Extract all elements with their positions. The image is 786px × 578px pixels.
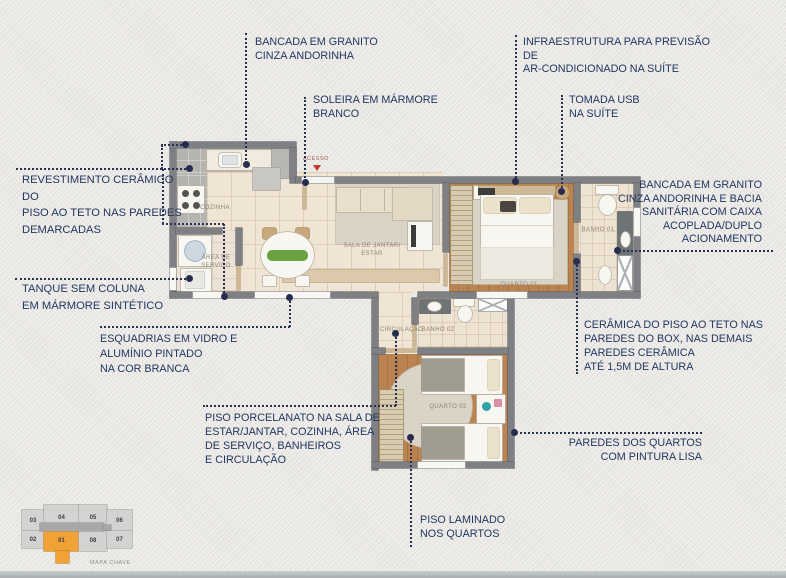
wall: [465, 462, 514, 468]
keymap-unit-number: 05: [90, 515, 97, 521]
connector-dot: [407, 434, 414, 441]
connector-line: [15, 278, 190, 280]
connector-dot: [243, 161, 250, 168]
bathroom2-sink: [428, 302, 441, 311]
connector-dot: [186, 165, 193, 172]
keymap-unit-number: 01: [58, 538, 65, 544]
connector-dot: [221, 293, 228, 300]
table-runner: [267, 250, 308, 261]
sofa-cushion-divider: [360, 189, 361, 211]
callout-bancada-granito-banho: BANCADA EM GRANITO CINZA ANDORINHA E BAC…: [600, 179, 762, 247]
connector-line: [515, 35, 517, 182]
callout-bancada-granito-cozinha: BANCADA EM GRANITO CINZA ANDORINHA: [255, 36, 400, 63]
connector-line: [245, 33, 247, 164]
connector-dot: [512, 178, 519, 185]
window-bedroom1: [477, 292, 527, 298]
connector-dot: [392, 330, 399, 337]
blanket-bed2: [422, 427, 464, 459]
pillow: [520, 198, 550, 213]
room-label-area-servico: ÁREA DE SERVIÇO: [196, 255, 236, 270]
wall: [574, 183, 580, 222]
window-bedroom2: [418, 462, 465, 468]
keymap-unit-01-highlighted: 01: [44, 531, 79, 551]
keymap-unit-number: 04: [58, 515, 65, 521]
callout-piso-porcelanato: PISO PORCELANATO NA SALA DE ESTAR/JANTAR…: [205, 411, 385, 467]
connector-dot: [286, 294, 293, 301]
wall: [418, 348, 508, 354]
callout-infra-ar-condicionado: INFRAESTRUTURA PARA PREVISÃO DE AR-CONDI…: [523, 36, 718, 77]
window-laundry: [193, 292, 222, 298]
tv-bedroom1: [478, 188, 495, 195]
dining-stool: [263, 276, 276, 286]
dining-stool: [296, 276, 309, 286]
connector-line: [410, 438, 412, 547]
toilet-tank-bathroom2: [454, 299, 474, 306]
connector-line: [515, 432, 702, 434]
connector-line: [161, 145, 163, 169]
keymap-unit-number: 03: [30, 518, 37, 524]
tv: [411, 225, 416, 247]
wall: [443, 183, 449, 252]
wall: [412, 298, 418, 324]
kitchen-sink-basin: [223, 156, 237, 164]
connector-dot: [302, 179, 309, 186]
pillow-bed1: [488, 360, 499, 390]
keymap-unit-02: 02: [22, 531, 44, 548]
connector-line: [203, 405, 396, 407]
entrance-label: ACESSO: [303, 156, 337, 162]
shower-box-bathroom1: [618, 256, 632, 290]
desk-chair: [482, 402, 491, 411]
callout-piso-laminado: PISO LAMINADO NOS QUARTOS: [420, 514, 530, 541]
callout-esquadrias: ESQUADRIAS EM VIDRO E ALUMÍNIO PINTADO N…: [100, 332, 245, 377]
shower-box-bathroom2: [479, 299, 507, 311]
bathroom1-door: [575, 223, 578, 252]
connector-dot: [573, 258, 580, 265]
bedroom2-door: [386, 349, 416, 352]
room-label-banho-02: BANHO 02: [419, 327, 457, 335]
wardrobe-bedroom1: [451, 186, 472, 284]
keymap-corridor: [40, 523, 104, 531]
wall: [236, 228, 242, 265]
callout-revestimento-ceramico: REVESTIMENTO CERÂMICO DO PISO AO TETO NA…: [22, 172, 187, 238]
callout-tomada-usb: TOMADA USB NA SUÍTE: [569, 94, 679, 121]
toilet-bathroom2: [458, 306, 472, 322]
connector-dot: [182, 141, 189, 148]
connector-line: [395, 334, 397, 406]
room-label-circulacao: CIRCULAÇÃO: [380, 327, 420, 335]
keymap-unit-01-tab: [56, 551, 69, 563]
room-label-quarto-02: QUARTO 02: [423, 404, 473, 412]
desk-accessory: [494, 399, 502, 407]
callout-paredes-quartos: PAREDES DOS QUARTOS COM PINTURA LISA: [540, 437, 702, 464]
room-label-sala: SALA DE JANTAR/ ESTAR: [342, 243, 402, 258]
laundry-door: [237, 266, 240, 290]
footer-bar: [0, 571, 786, 578]
callout-soleira-marmore: SOLEIRA EM MÁRMORE BRANCO: [313, 94, 443, 121]
kitchen-cabinet: [253, 168, 280, 190]
pillow-bed2: [488, 428, 499, 458]
connector-line: [618, 250, 773, 252]
keymap-unit-number: 06: [116, 518, 123, 524]
wall: [527, 292, 640, 298]
floorplan-brochure: COZINHA ÁREA DE SERVIÇO SALA DE JANTAR/ …: [0, 0, 786, 578]
sofa-cushion-divider: [384, 189, 385, 211]
entrance-arrow-icon: [313, 165, 321, 171]
connector-dot: [511, 429, 518, 436]
callout-ceramica-box: CERÂMICA DO PISO AO TETO NAS PAREDES DO …: [584, 318, 769, 374]
wall: [330, 292, 378, 298]
wall: [418, 292, 477, 298]
connector-line: [100, 326, 290, 328]
keymap-caption: MAPA CHAVE: [90, 560, 131, 566]
room-label-cozinha: COZINHA: [195, 205, 235, 213]
wall: [334, 177, 640, 183]
connector-dot: [558, 188, 565, 195]
keymap-unit-number: 02: [30, 537, 37, 543]
bathroom1-bidet: [599, 266, 611, 284]
connector-line: [576, 262, 578, 374]
connector-line: [223, 224, 225, 297]
bedroom1-door: [444, 254, 447, 286]
blanket: [481, 248, 553, 279]
keymap-unit-07: 07: [107, 531, 132, 548]
wall: [508, 298, 514, 468]
connector-dot: [614, 247, 621, 254]
wall: [372, 348, 385, 354]
connector-line: [289, 298, 291, 327]
accent-pillow: [500, 201, 516, 212]
blanket-bed1: [422, 359, 464, 391]
entrance-door: [303, 183, 306, 209]
keymap-unit-number: 07: [116, 537, 123, 543]
connector-line: [304, 97, 306, 182]
stove-burner: [193, 190, 200, 197]
connector-line: [561, 95, 563, 192]
keymap-corridor-tip: [104, 525, 111, 530]
duvet-fold: [481, 225, 553, 226]
sofa-chaise: [393, 188, 432, 220]
keymap-unit-number: 08: [90, 538, 97, 544]
connector-dot: [186, 275, 193, 282]
keymap-unit-08: 08: [79, 531, 107, 551]
callout-tanque-sem-coluna: TANQUE SEM COLUNA EM MÁRMORE SINTÉTICO: [22, 281, 187, 314]
room-label-quarto-01: QUARTO 01: [494, 282, 544, 290]
